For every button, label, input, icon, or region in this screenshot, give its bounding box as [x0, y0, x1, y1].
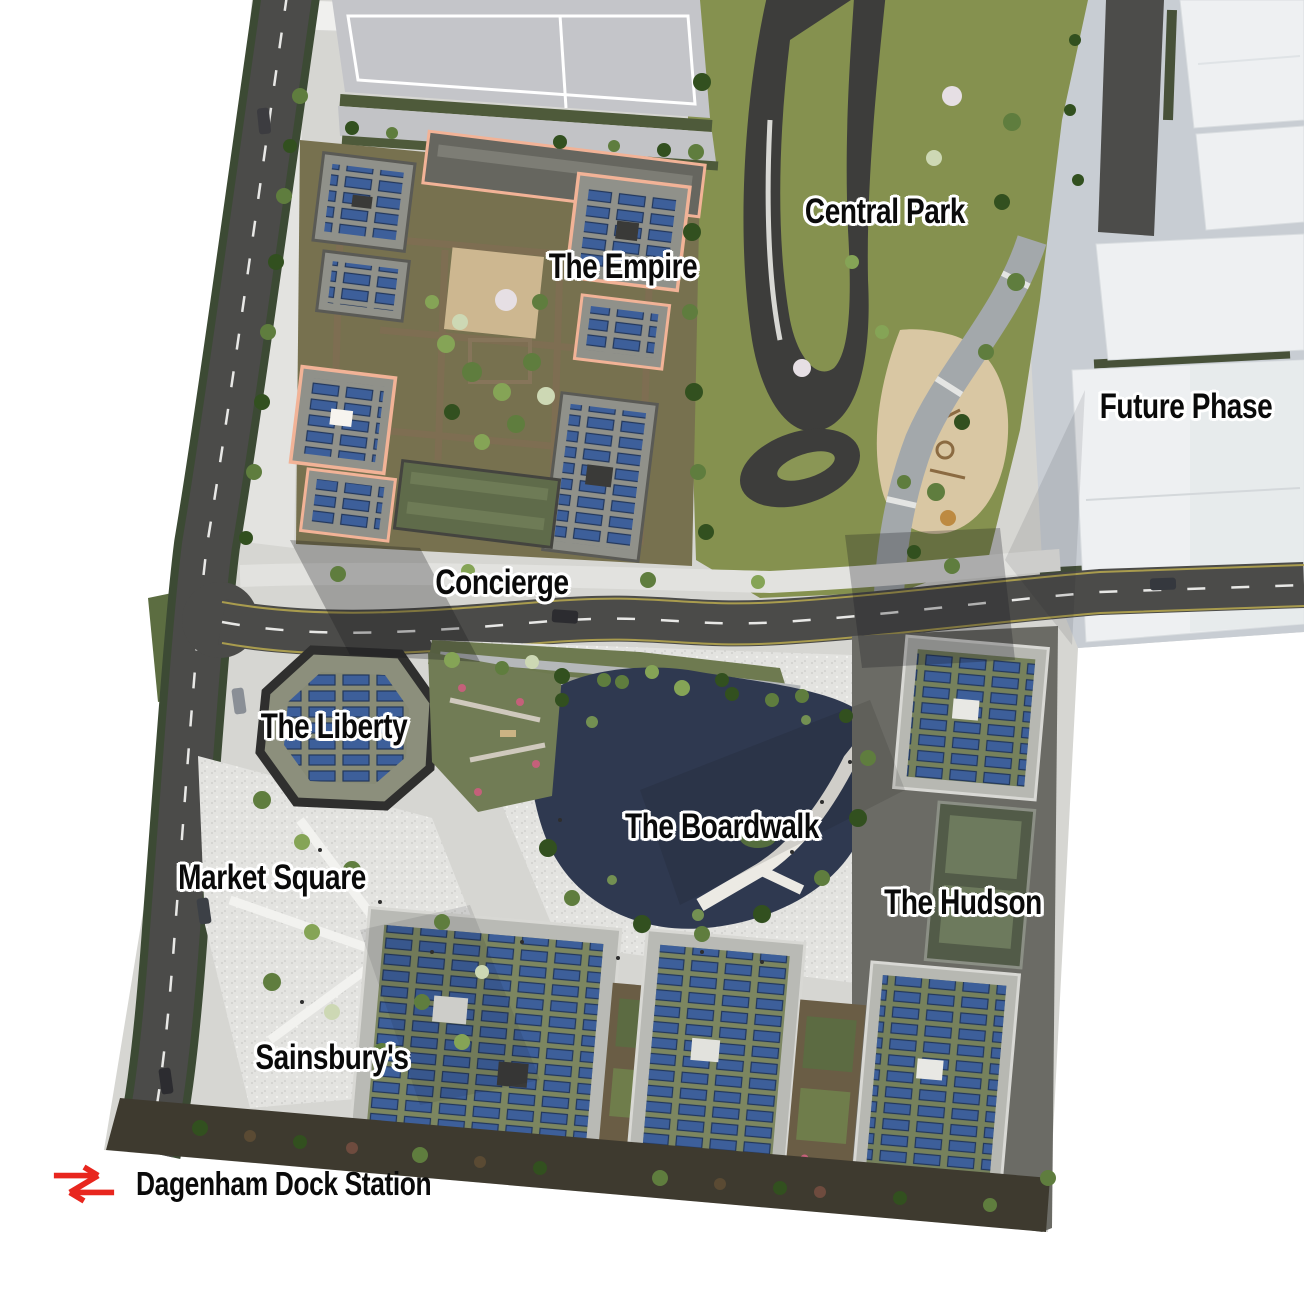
- empire-block-w2: [317, 251, 410, 321]
- empire-block-sw: [291, 367, 396, 474]
- empire-block-e2: [574, 295, 669, 369]
- empire-precinct: [228, 120, 705, 566]
- label-the-hudson: The Hudson: [884, 883, 1042, 923]
- label-market-square: Market Square: [178, 858, 366, 898]
- national-rail-icon: [52, 1164, 116, 1204]
- station-label: Dagenham Dock Station: [136, 1165, 431, 1203]
- label-the-boardwalk: The Boardwalk: [625, 807, 819, 847]
- label-future-phase: Future Phase: [1100, 387, 1273, 427]
- label-the-empire: The Empire: [549, 247, 697, 287]
- empire-block-sw2: [301, 469, 396, 541]
- aerial-render: [0, 0, 1304, 1304]
- station-legend: Dagenham Dock Station: [52, 1164, 505, 1204]
- label-central-park: Central Park: [805, 192, 965, 232]
- label-the-liberty: The Liberty: [261, 707, 408, 747]
- empire-block-se: [543, 393, 658, 562]
- hudson-south-block: [853, 962, 1020, 1196]
- label-sainsburys: Sainsbury's: [255, 1038, 408, 1078]
- label-concierge: Concierge: [435, 563, 568, 603]
- empire-block-nw: [313, 153, 415, 252]
